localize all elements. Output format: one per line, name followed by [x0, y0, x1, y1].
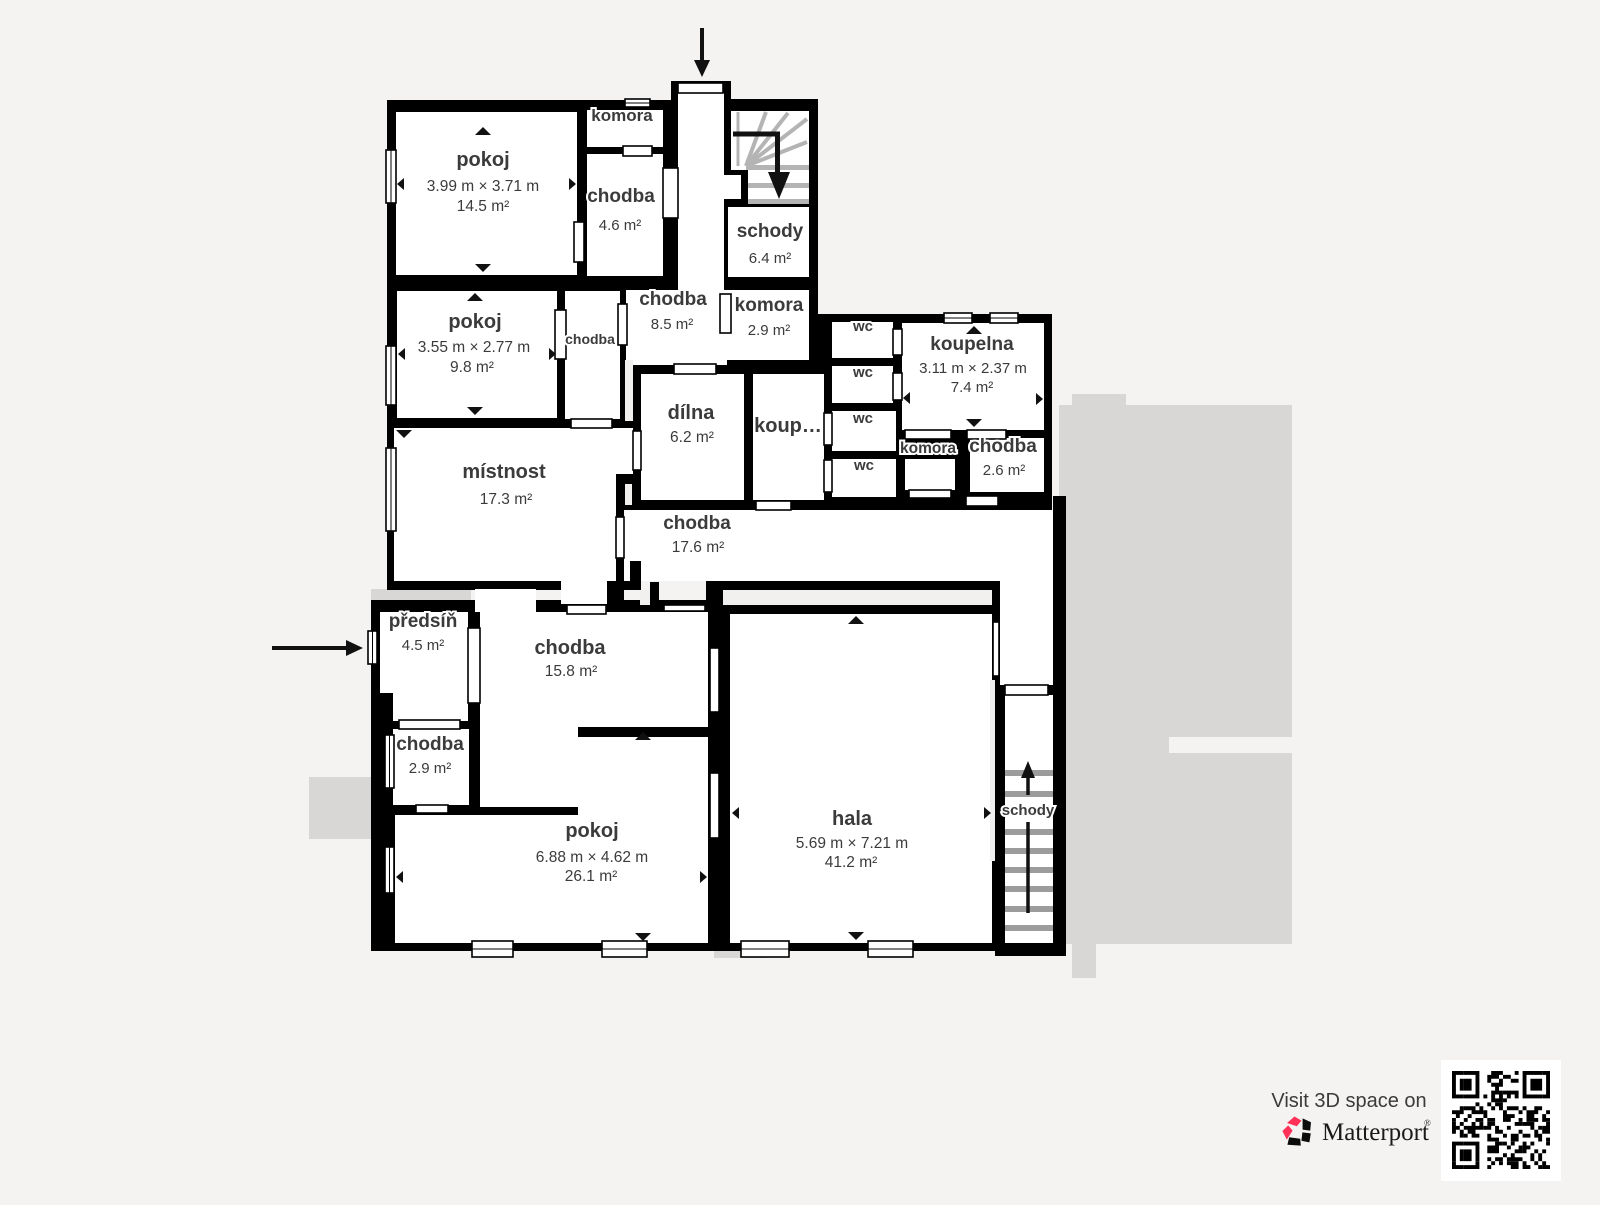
- svg-text:chodba: chodba: [969, 436, 1037, 457]
- svg-text:chodba: chodba: [639, 289, 707, 310]
- svg-text:dílna: dílna: [668, 402, 716, 424]
- svg-text:hala: hala: [832, 808, 873, 830]
- svg-text:3.11 m × 2.37 m: 3.11 m × 2.37 m: [919, 360, 1027, 377]
- svg-text:místnost: místnost: [462, 461, 546, 483]
- svg-text:17.6 m²: 17.6 m²: [672, 539, 725, 556]
- svg-text:wc: wc: [852, 410, 873, 427]
- svg-text:6.4 m²: 6.4 m²: [749, 250, 792, 267]
- svg-text:wc: wc: [852, 318, 873, 335]
- svg-text:pokoj: pokoj: [565, 820, 618, 842]
- svg-text:předsíň: předsíň: [389, 611, 458, 632]
- svg-text:chodba: chodba: [565, 331, 615, 347]
- svg-text:7.4 m²: 7.4 m²: [951, 379, 994, 396]
- svg-text:schody: schody: [737, 221, 804, 242]
- svg-text:chodba: chodba: [396, 734, 464, 755]
- svg-text:17.3 m²: 17.3 m²: [480, 491, 533, 508]
- svg-text:3.55 m × 2.77 m: 3.55 m × 2.77 m: [418, 339, 530, 356]
- svg-text:2.6 m²: 2.6 m²: [983, 462, 1026, 479]
- svg-text:komora: komora: [591, 106, 653, 125]
- svg-text:chodba: chodba: [587, 186, 655, 207]
- svg-text:koup…: koup…: [754, 415, 822, 437]
- svg-text:14.5 m²: 14.5 m²: [457, 198, 510, 215]
- svg-text:6.88 m × 4.62 m: 6.88 m × 4.62 m: [536, 849, 648, 866]
- svg-text:4.6 m²: 4.6 m²: [599, 217, 642, 234]
- svg-text:26.1 m²: 26.1 m²: [565, 868, 618, 885]
- svg-text:3.99 m × 3.71 m: 3.99 m × 3.71 m: [427, 178, 539, 195]
- svg-text:pokoj: pokoj: [456, 149, 509, 171]
- svg-text:6.2 m²: 6.2 m²: [670, 429, 714, 446]
- svg-text:Matterport: Matterport: [1322, 1119, 1429, 1146]
- svg-text:wc: wc: [853, 457, 874, 474]
- svg-text:pokoj: pokoj: [448, 311, 501, 333]
- svg-text:schody: schody: [1002, 802, 1055, 819]
- svg-text:Visit 3D space on: Visit 3D space on: [1271, 1090, 1426, 1112]
- svg-text:41.2 m²: 41.2 m²: [825, 854, 878, 871]
- svg-text:wc: wc: [852, 364, 873, 381]
- svg-text:®: ®: [1424, 1118, 1431, 1128]
- svg-text:chodba: chodba: [663, 513, 731, 534]
- svg-text:9.8 m²: 9.8 m²: [450, 359, 494, 376]
- svg-text:2.9 m²: 2.9 m²: [748, 322, 791, 339]
- svg-text:chodba: chodba: [534, 637, 606, 659]
- svg-text:5.69 m × 7.21 m: 5.69 m × 7.21 m: [796, 835, 908, 852]
- svg-text:4.5 m²: 4.5 m²: [402, 637, 445, 654]
- svg-text:8.5 m²: 8.5 m²: [651, 316, 694, 333]
- svg-text:komora: komora: [900, 440, 956, 457]
- svg-text:komora: komora: [735, 295, 804, 316]
- svg-text:15.8 m²: 15.8 m²: [545, 663, 598, 680]
- svg-text:koupelna: koupelna: [930, 334, 1014, 355]
- svg-text:2.9 m²: 2.9 m²: [409, 760, 452, 777]
